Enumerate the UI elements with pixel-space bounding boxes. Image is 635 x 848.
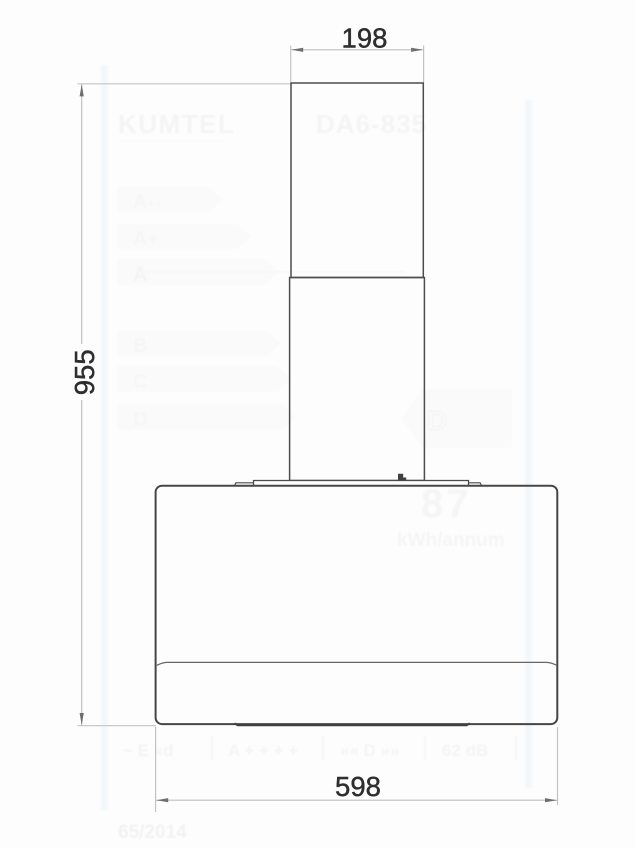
svg-text:~ E «d: ~ E «d (123, 741, 174, 760)
svg-text:598: 598 (335, 771, 381, 802)
svg-text:A: A (133, 264, 147, 286)
svg-text:D: D (427, 405, 447, 436)
svg-text:955: 955 (69, 349, 100, 395)
svg-text:65/2014: 65/2014 (118, 822, 187, 843)
svg-text:B: B (133, 335, 147, 357)
svg-text:A + + + +: A + + + + (228, 741, 298, 760)
svg-text:KUMTEL: KUMTEL (118, 109, 235, 139)
svg-text:198: 198 (342, 23, 388, 54)
svg-text:A+: A+ (133, 228, 159, 250)
svg-text:DA6-835: DA6-835 (316, 109, 427, 139)
svg-text:kWh/annum: kWh/annum (397, 530, 505, 551)
svg-text:D: D (133, 409, 147, 431)
svg-text:«« D »»: «« D »» (340, 741, 400, 760)
svg-text:62 dB: 62 dB (442, 741, 488, 760)
svg-text:87: 87 (421, 482, 472, 526)
svg-text:C: C (133, 371, 147, 393)
